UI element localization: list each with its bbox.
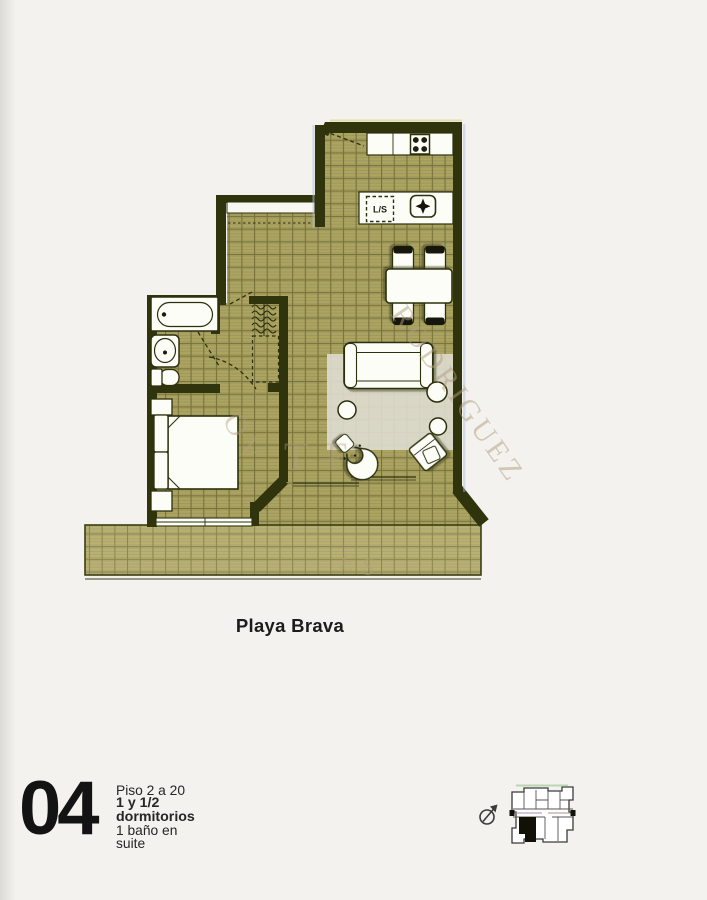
terrace-floor	[85, 525, 481, 575]
dining-chair	[425, 246, 446, 272]
unit-bath: 1 baño en suite	[116, 824, 195, 851]
floor-plan-canvas: L/S	[0, 0, 707, 900]
sink-icon	[411, 196, 436, 218]
keyplan-outline	[512, 787, 573, 843]
keyplan-core-left	[510, 810, 515, 816]
bedroom-sliding-door	[156, 518, 252, 526]
nightstand	[151, 399, 172, 415]
unit-number: 04	[19, 771, 96, 847]
keyplan	[510, 786, 576, 844]
pillow	[154, 452, 168, 489]
unit-bedrooms: 1 y 1/2 dormitorios	[116, 797, 195, 824]
pillow	[154, 415, 168, 452]
washbasin-icon	[151, 335, 179, 367]
bathtub	[151, 297, 218, 331]
round-table	[430, 418, 447, 435]
nightstand	[151, 491, 172, 511]
plan-title: Playa Brava	[205, 615, 375, 637]
dining-table	[386, 269, 452, 303]
washer-dryer-label: L/S	[373, 205, 387, 215]
scanned-floor-plan-page: L/S	[0, 0, 707, 900]
keyplan-core-right	[571, 810, 576, 816]
unit-details: Piso 2 a 20 1 y 1/2 dormitorios 1 baño e…	[116, 784, 195, 850]
round-table	[338, 401, 356, 419]
watermark-fragment: TF	[284, 434, 365, 479]
dining-chair	[393, 246, 414, 272]
north-arrow-icon	[480, 805, 498, 825]
toilet-icon	[151, 369, 179, 386]
stove-burners-icon	[411, 135, 430, 155]
